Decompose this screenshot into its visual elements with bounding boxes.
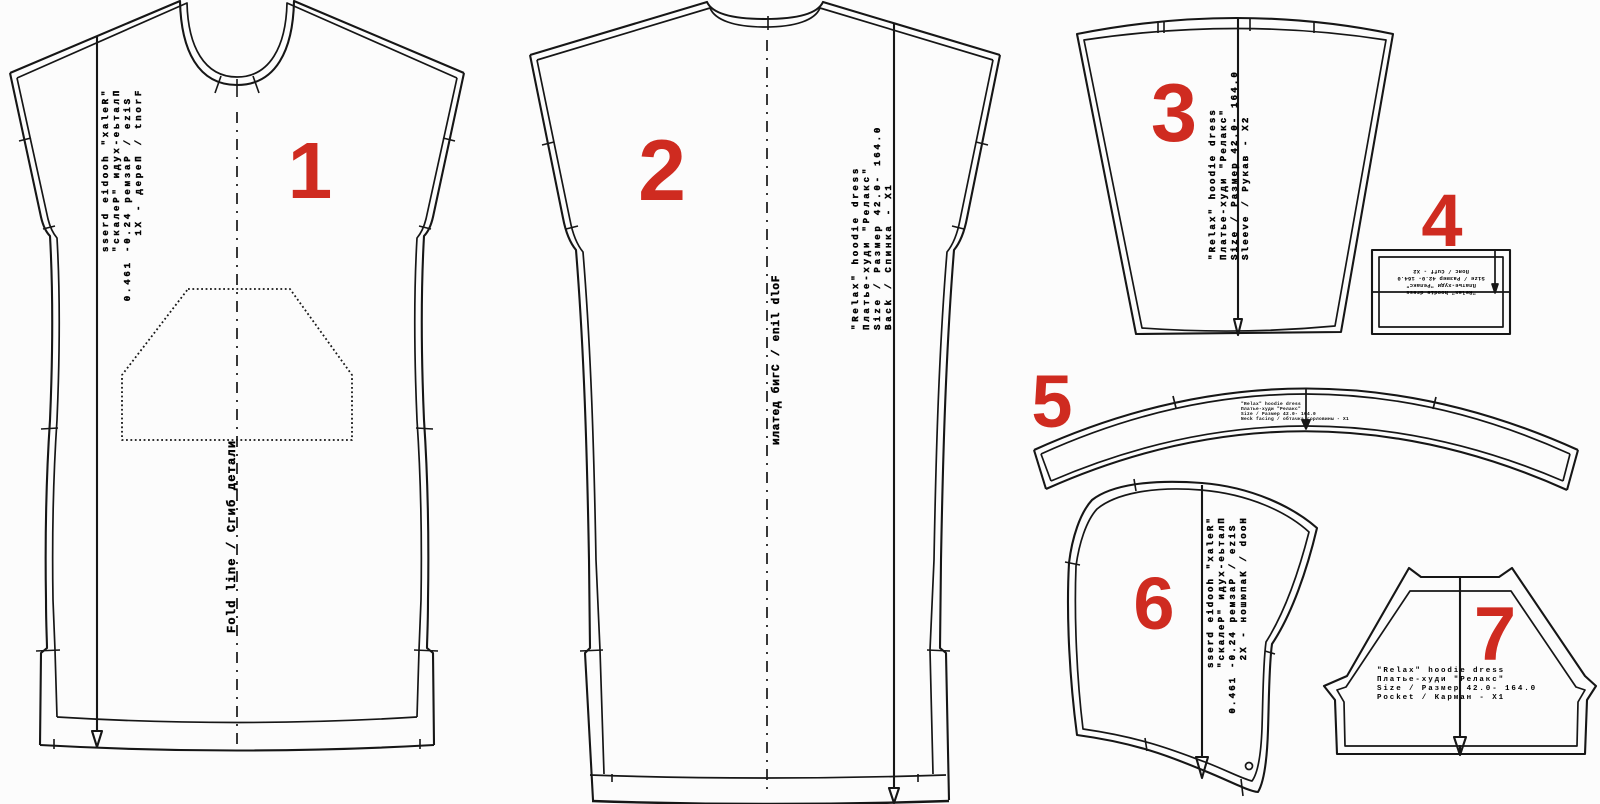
svg-text:6: 6 — [1133, 562, 1174, 645]
svg-text:2X - ношюпаК / dooH: 2X - ношюпаК / dooH — [1239, 516, 1249, 660]
svg-text:Size / Размер 42.0- 164.0: Size / Размер 42.0- 164.0 — [873, 125, 883, 330]
svg-text:sserd eidooh "xaleR": sserd eidooh "xaleR" — [1206, 516, 1216, 668]
svg-text:"Relax" hoodie dress: "Relax" hoodie dress — [1208, 108, 1218, 260]
svg-text:Платье-худи "Релакс": Платье-худи "Релакс" — [1219, 108, 1229, 260]
svg-text:0.461 -0.24 ремзаР / eziS: 0.461 -0.24 ремзаР / eziS — [123, 96, 133, 301]
svg-text:Sleeve / Рукав - X2: Sleeve / Рукав - X2 — [1241, 116, 1251, 260]
svg-text:Платье-худи "Релакс": Платье-худи "Релакс" — [1406, 282, 1476, 289]
svg-text:илатед бигС / enil dloF: илатед бигС / enil dloF — [770, 275, 783, 445]
svg-text:Size / Размер 42.0- 164.0: Size / Размер 42.0- 164.0 — [1230, 70, 1240, 260]
svg-text:5: 5 — [1031, 360, 1072, 443]
svg-text:"скалеР" идух-еьталП: "скалеР" идух-еьталП — [1217, 516, 1227, 668]
svg-text:3: 3 — [1151, 66, 1197, 159]
svg-text:Neck facing / обтачка горловин: Neck facing / обтачка горловины - X1 — [1241, 415, 1349, 422]
svg-text:"Relax" hoodie dress: "Relax" hoodie dress — [851, 166, 861, 330]
svg-text:7: 7 — [1474, 592, 1516, 677]
svg-text:Pocket / Карман - X1: Pocket / Карман - X1 — [1377, 694, 1505, 702]
svg-text:"Relax" hoodie dress: "Relax" hoodie dress — [1406, 289, 1476, 296]
svg-text:4: 4 — [1421, 179, 1462, 262]
svg-text:Fold line / Сгиб детали: Fold line / Сгиб детали — [224, 440, 239, 633]
svg-text:Пояс / Cuff - X2: Пояс / Cuff - X2 — [1413, 268, 1469, 275]
svg-text:sserd eidooh "xaleR": sserd eidooh "xaleR" — [101, 88, 111, 252]
svg-text:Платье-худи "Релакс": Платье-худи "Релакс" — [1377, 676, 1505, 684]
svg-text:0.461 -0.24 ремзаР / eziS: 0.461 -0.24 ремзаР / eziS — [1228, 524, 1238, 714]
svg-text:Size / Размер 42.0- 164.0: Size / Размер 42.0- 164.0 — [1397, 275, 1485, 282]
svg-text:2: 2 — [638, 123, 686, 219]
svg-text:Back / Спинка - X1: Back / Спинка - X1 — [884, 182, 894, 330]
svg-text:Size / Размер 42.0- 164.0: Size / Размер 42.0- 164.0 — [1377, 685, 1537, 693]
svg-text:Платье-худи "Релакс": Платье-худи "Релакс" — [862, 166, 872, 330]
svg-text:1: 1 — [288, 126, 333, 215]
svg-text:1X - дереП / tnorF: 1X - дереП / tnorF — [134, 88, 144, 236]
svg-text:"скалеР" идух-еьталП: "скалеР" идух-еьталП — [112, 88, 122, 252]
